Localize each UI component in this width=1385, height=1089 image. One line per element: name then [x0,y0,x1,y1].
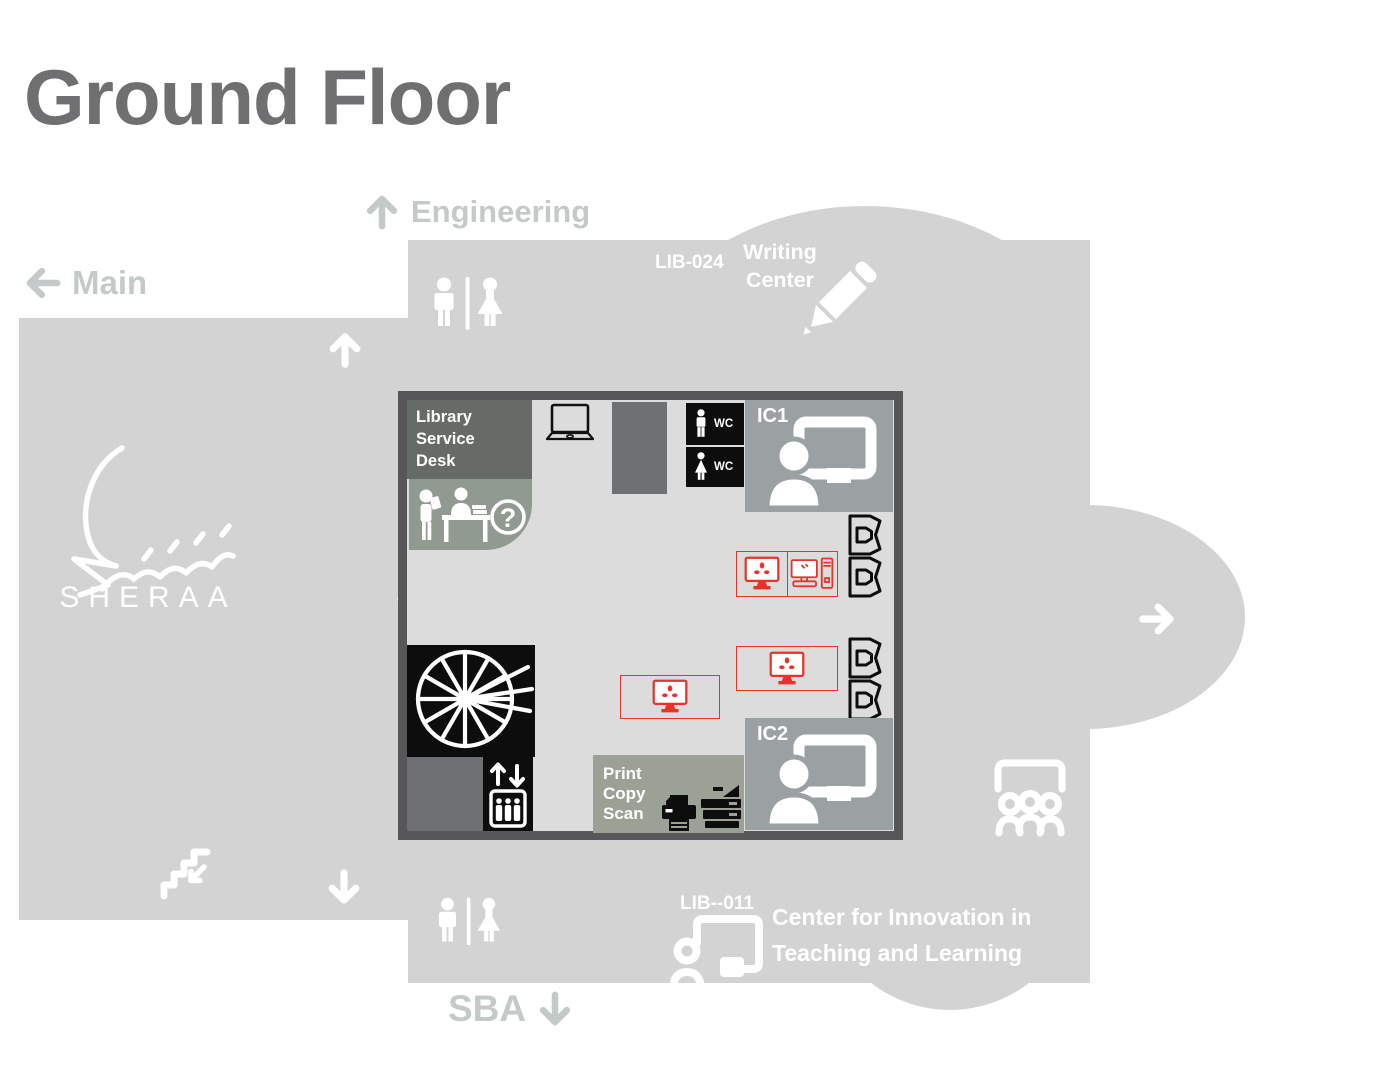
bookshelf-icon [847,514,885,598]
service-desk-icon: ? [409,479,532,550]
instructor-screen-icon [670,913,764,997]
laptop-icon [545,403,595,445]
direction-main: Main [24,264,147,302]
building-left-wing [19,318,409,920]
wc-women: WC [686,447,744,487]
elevator-icon [483,757,533,831]
restroom-icon [434,895,506,952]
wall-pillar [612,402,667,494]
computer-station [620,675,720,719]
floor-map: Ground Floor Engineering Main SBA LIB-02… [0,0,1385,1089]
page-title: Ground Floor [24,52,510,143]
instructor-screen-icon [763,734,877,826]
print-copy-scan-area: Print Copy Scan [593,755,744,833]
spiral-staircase [407,645,535,757]
sheraa-logo-text: SHERAA [59,581,236,614]
library-service-desk-box: Library Service Desk [407,400,532,479]
red-monitor-icon [742,556,782,592]
citl-label: Center for Innovation in Teaching and Le… [772,900,1074,971]
monitor-cell [737,552,787,596]
red-monitor-icon [767,651,807,687]
red-desktop-icon [790,556,834,592]
utility-room [407,757,483,831]
citl-room-code: LIB--011 [680,893,754,915]
direction-engineering-label: Engineering [411,194,590,230]
up-arrow-icon [326,331,364,369]
computer-station [736,646,838,691]
spiral-staircase-icon [407,645,535,757]
bookshelf-icon [847,637,885,721]
audience-screen-icon [987,753,1073,837]
question-mark-icon: ? [500,503,517,533]
pencil-icon [788,252,888,354]
ic2-room: IC2 [745,718,893,830]
computer-station-group [736,551,838,597]
copier-icon [699,779,743,831]
restroom-icon [429,276,509,336]
desktop-pc-cell [787,552,838,596]
wc-men: WC [686,403,744,445]
down-arrow-icon [536,990,574,1028]
sheraa-logo: SHERAA [36,438,260,614]
library-service-desk-label: Library Service Desk [407,400,516,472]
library-room: Library Service Desk [398,391,903,840]
direction-main-label: Main [72,264,147,302]
right-arrow-icon [1138,600,1176,638]
wc-label: WC [714,418,733,430]
instructor-screen-icon [763,416,877,508]
direction-sba: SBA [448,988,574,1030]
wc-label: WC [714,461,733,473]
ic1-room: IC1 [745,400,893,512]
elevator [483,757,533,831]
woman-icon [693,451,709,483]
red-monitor-icon [650,679,690,715]
stairs-down-icon [158,840,224,902]
writing-center-room-code: LIB-024 [655,252,724,274]
printer-icon [659,793,699,833]
direction-engineering: Engineering [363,193,590,231]
man-icon [693,407,709,441]
direction-sba-label: SBA [448,988,526,1030]
up-arrow-icon [363,193,401,231]
left-arrow-icon [24,264,62,302]
service-desk-area: ? [409,479,532,550]
down-arrow-icon [325,868,363,906]
